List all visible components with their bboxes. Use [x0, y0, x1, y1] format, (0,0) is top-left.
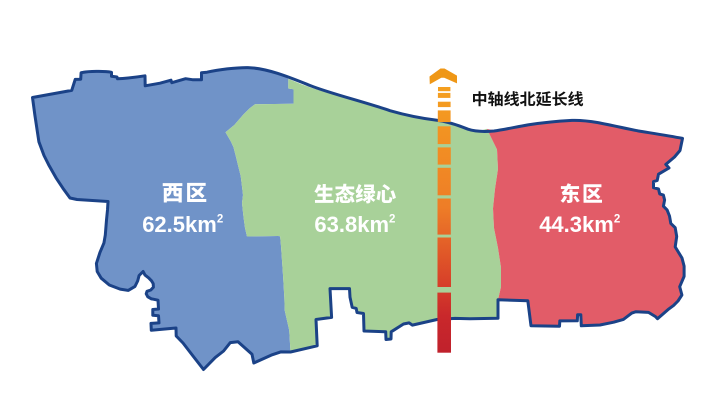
svg-text:44.3km2: 44.3km2	[539, 212, 620, 237]
svg-text:62.5km2: 62.5km2	[142, 212, 223, 237]
svg-text:63.8km2: 63.8km2	[314, 212, 395, 237]
